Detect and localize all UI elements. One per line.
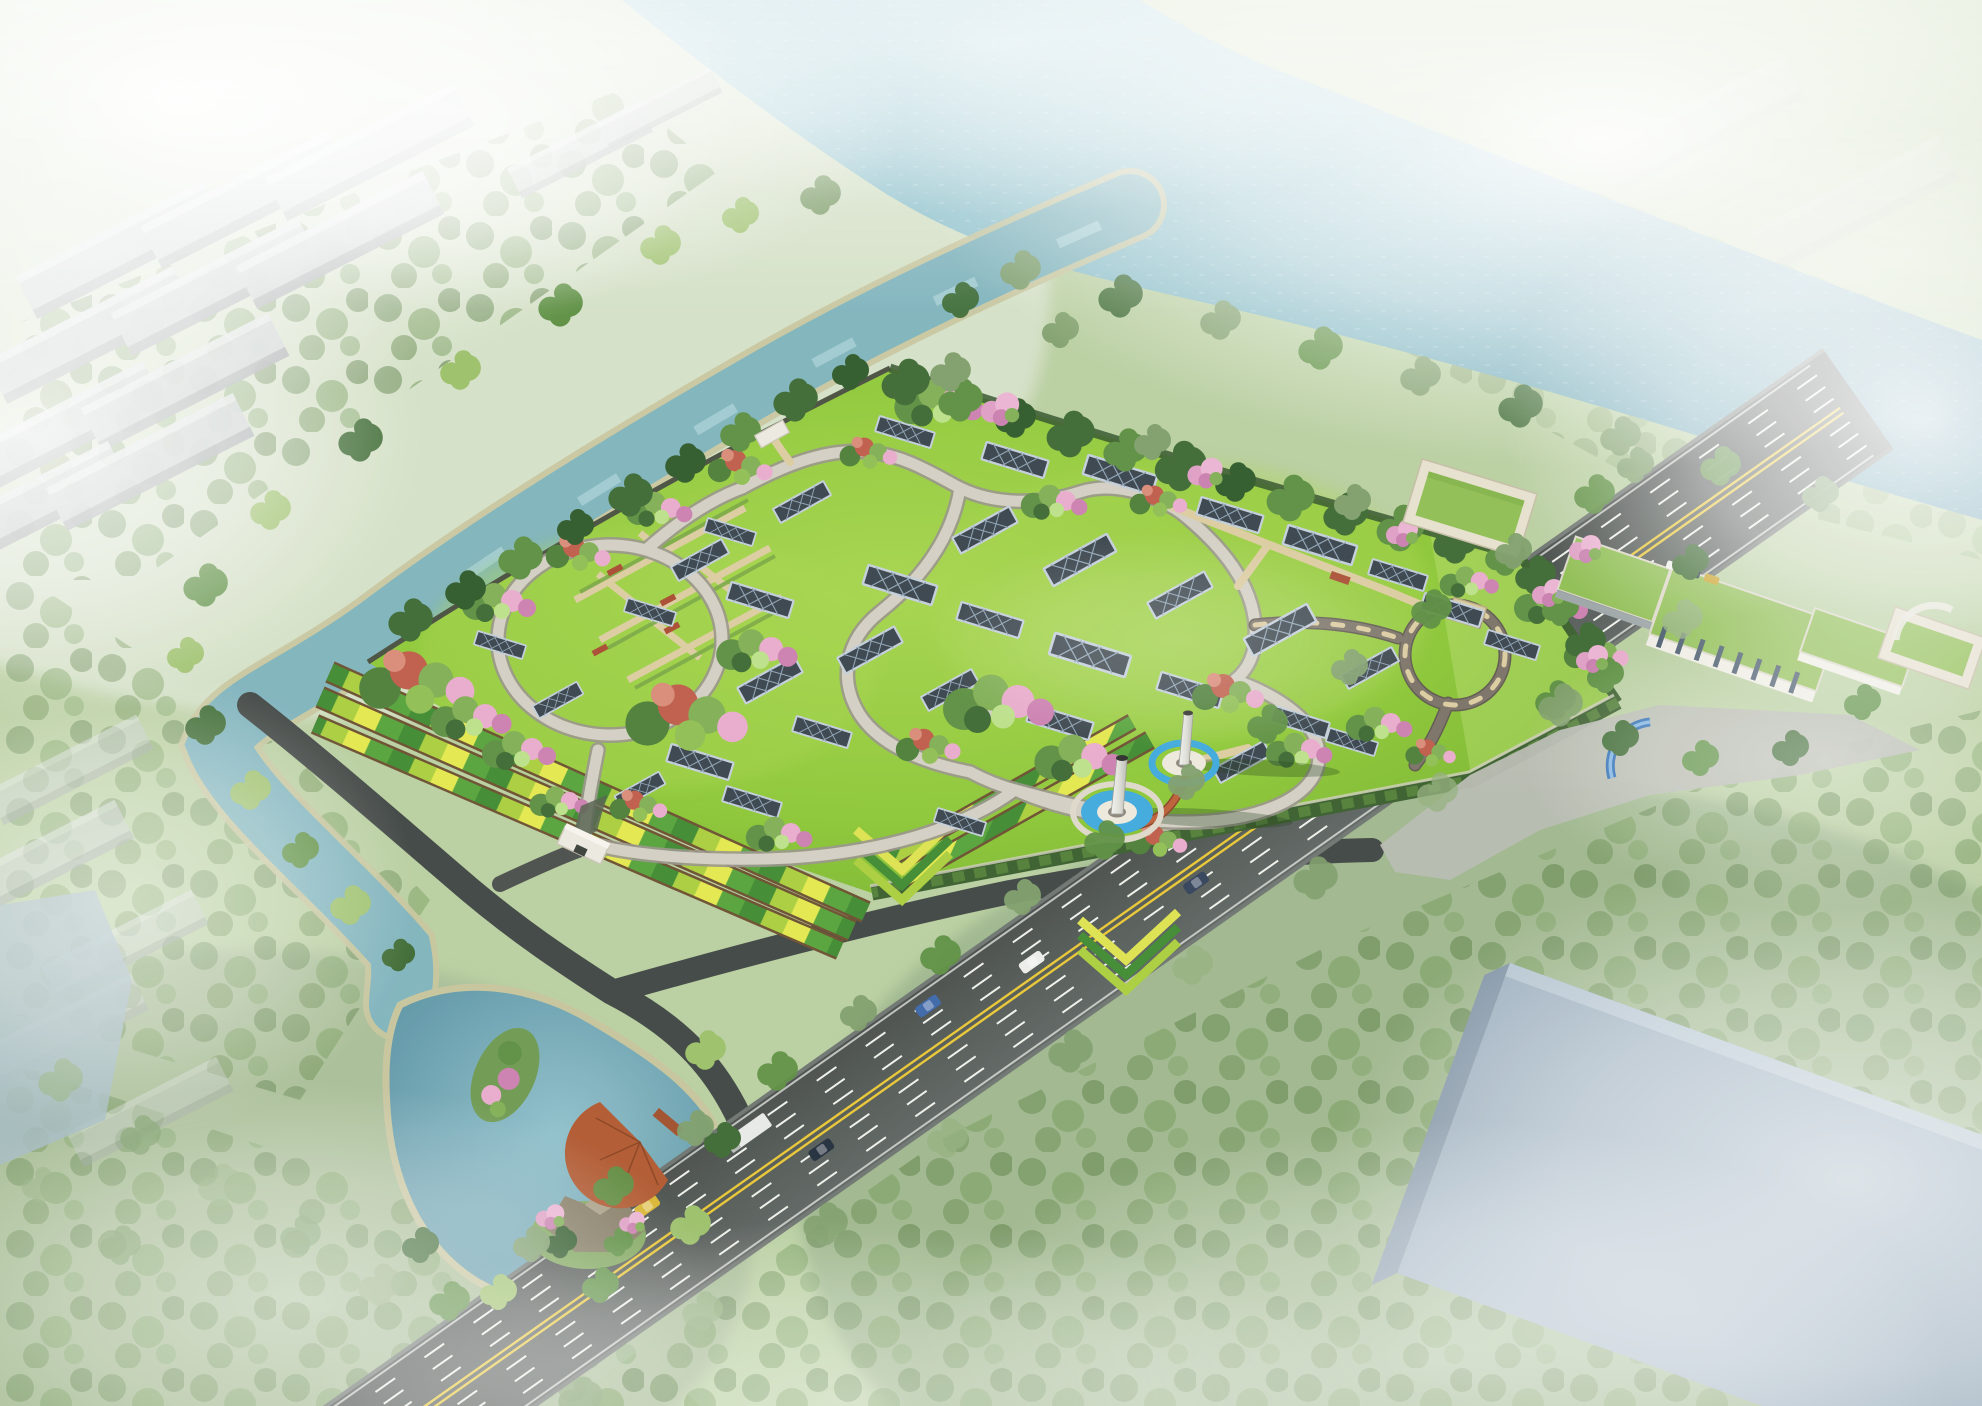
scene-canvas	[0, 0, 1982, 1406]
aerial-rendering	[0, 0, 1982, 1406]
atmosphere-veil	[0, 0, 1982, 1406]
fog-layer	[0, 0, 1982, 1406]
